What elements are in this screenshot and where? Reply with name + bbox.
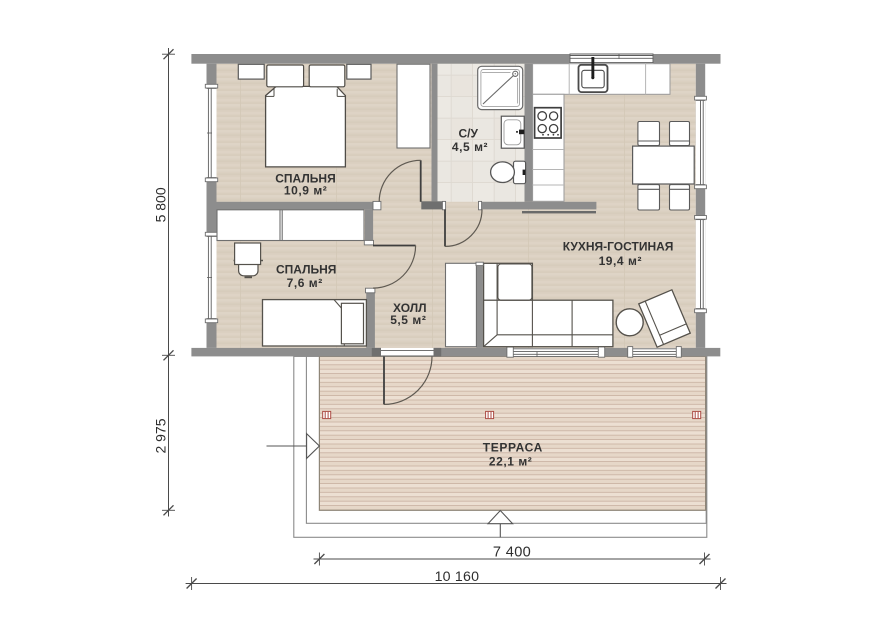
svg-text:22,1 м²: 22,1 м² — [489, 455, 532, 469]
svg-text:10,9 м²: 10,9 м² — [284, 183, 327, 197]
svg-text:ТЕРРАСА: ТЕРРАСА — [483, 440, 543, 454]
svg-text:С/У: С/У — [458, 126, 478, 140]
svg-text:10 160: 10 160 — [435, 569, 480, 585]
svg-text:19,4 м²: 19,4 м² — [599, 254, 642, 268]
svg-text:7 400: 7 400 — [493, 544, 531, 560]
svg-text:4,5 м²: 4,5 м² — [452, 140, 488, 154]
svg-text:5 800: 5 800 — [153, 187, 169, 222]
svg-text:2 975: 2 975 — [153, 418, 169, 453]
svg-text:5,5 м²: 5,5 м² — [390, 313, 426, 327]
svg-text:7,6 м²: 7,6 м² — [287, 276, 323, 290]
svg-text:СПАЛЬНЯ: СПАЛЬНЯ — [276, 262, 336, 276]
svg-text:КУХНЯ-ГОСТИНАЯ: КУХНЯ-ГОСТИНАЯ — [563, 239, 674, 253]
